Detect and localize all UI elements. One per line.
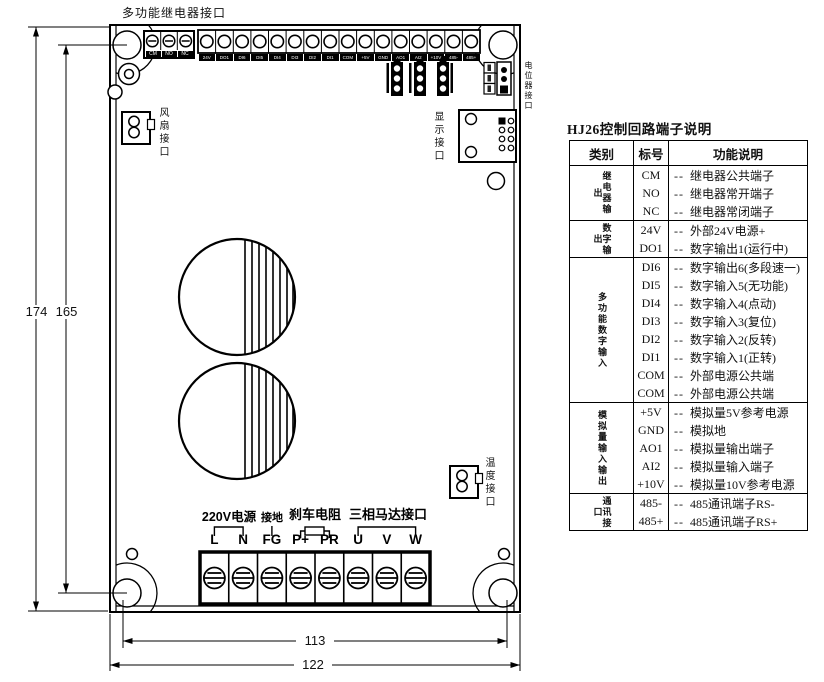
terminal-letter: V [373,531,402,548]
dash: -- [674,315,684,329]
table-row: 模拟量输入输出 +5V --模拟量5V参考电源 [570,403,808,422]
terminal-id: NO [634,184,669,202]
dash: -- [674,242,684,256]
io-terminal-label: AO1 [392,54,409,61]
terminal-letter: N [229,531,258,548]
terminal-id: AI2 [634,457,669,475]
relay-terminal-label: NO [162,51,177,59]
temperature-connector-label: 温度接口 [483,457,493,509]
display-connector-label: 显示接口 [432,111,442,163]
io-terminal-label: GND [375,54,392,61]
io-terminal-label: DI3 [287,54,304,61]
dash: -- [674,169,684,183]
potentiometer-connector-label: 电位器接口 [524,61,532,111]
terminal-id: 485- [634,494,669,513]
dash: -- [674,497,684,511]
dash: -- [674,369,684,383]
terminal-desc: 继电器公共端子 [690,169,774,183]
terminal-id: 485+ [634,512,669,531]
terminal-id: DI3 [634,312,669,330]
dash: -- [674,478,684,492]
terminal-desc: 模拟量10V参考电源 [690,478,795,492]
io-terminal-label: 485- [445,54,462,61]
multifunction-relay-label: 多功能继电器接口 [122,4,226,21]
dash: -- [674,205,684,219]
terminal-desc: 数字输出6(多段速一) [690,261,800,275]
terminal-desc: 485通讯端子RS+ [690,515,777,529]
relay-terminal-label: NC [178,51,193,59]
terminal-desc: 数字输入3(复位) [690,315,776,329]
table-row: 数字输出 24V --外部24V电源+ [570,221,808,240]
io-terminal-labels: 24V DO1 DI6 DI5 DI4 DI3 DI2 DI1 COM +5V … [198,54,480,61]
terminal-desc: 数字输入1(正转) [690,351,776,365]
relay-terminal-label: CM [146,51,161,59]
terminal-desc: 模拟量5V参考电源 [690,406,789,420]
terminal-id: NC [634,202,669,221]
category-cell: 继电器输出 [570,166,634,221]
terminal-letter: W [401,531,430,548]
fan-connector [122,112,155,144]
motor-group-label: 三相马达接口 [347,504,429,523]
io-terminal-label: DI1 [322,54,339,61]
dimension-overall-width: 122 [294,658,332,672]
terminal-desc: 数字输入5(无功能) [690,279,788,293]
table-row: 通讯接口 485- --485通讯端子RS- [570,494,808,513]
terminal-id: COM [634,384,669,403]
temperature-connector [450,466,483,498]
terminal-id: +10V [634,475,669,494]
terminal-desc: 外部24V电源+ [690,224,765,238]
terminal-desc: 485通讯端子RS- [690,497,775,511]
dash: -- [674,297,684,311]
dash: -- [674,406,684,420]
terminal-id: DO1 [634,239,669,258]
terminal-letter: P+ [286,531,315,548]
terminal-id: CM [634,166,669,185]
terminal-letter: L [200,531,229,548]
terminal-desc: 数字输入2(反转) [690,333,776,347]
fan-connector-label: 风扇接口 [157,107,167,159]
brake-resistor-group-label: 刹车电阻 [279,504,351,523]
table-title: HJ26控制回路端子说明 [567,118,712,138]
jumper-blocks [387,56,454,96]
terminal-desc: 数字输出1(运行中) [690,242,788,256]
io-terminal-label: +10V [428,54,445,61]
terminal-desc: 外部电源公共端 [690,369,774,383]
terminal-description-table: 类别 标号 功能说明 继电器输出 CM --继电器公共端子 NO --继电器常开… [569,140,808,531]
terminal-letter: FG [258,531,287,548]
category-label: 通讯接口 [593,494,611,530]
dash: -- [674,515,684,529]
header-id: 标号 [634,141,669,166]
terminal-desc: 继电器常开端子 [690,187,774,201]
dimension-overall-height: 174 [22,305,51,319]
terminal-letter: PR [315,531,344,548]
terminal-letter: U [344,531,373,548]
terminal-desc: 数字输入4(点动) [690,297,776,311]
io-terminal-label: AI2 [410,54,427,61]
dash: -- [674,442,684,456]
wiring-diagram-page: 多功能继电器接口 CM NO NC 24V DO1 DI6 DI5 DI4 DI… [0,0,824,682]
io-terminal-label: DI4 [269,54,286,61]
relay-terminal-labels: CM NO NC [145,51,193,59]
table-header-row: 类别 标号 功能说明 [570,141,808,166]
power-terminal-block [200,552,430,604]
io-terminal-label: 24V [199,54,216,61]
terminal-desc: 继电器常闭端子 [690,205,774,219]
io-terminal-row [198,30,480,53]
dash: -- [674,261,684,275]
dash: -- [674,460,684,474]
terminal-id: DI2 [634,330,669,348]
terminal-id: 24V [634,221,669,240]
category-cell: 通讯接口 [570,494,634,531]
dimension-hole-height: 165 [52,305,81,319]
dash: -- [674,351,684,365]
io-terminal-label: DI5 [251,54,268,61]
terminal-id: DI6 [634,258,669,277]
terminal-desc: 模拟地 [690,424,726,438]
header-description: 功能说明 [669,141,808,166]
dash: -- [674,224,684,238]
dash: -- [674,187,684,201]
dash: -- [674,387,684,401]
terminal-id: +5V [634,403,669,422]
terminal-id: DI5 [634,276,669,294]
category-label: 继电器输出 [593,166,611,220]
dash: -- [674,279,684,293]
category-cell: 多功能数字输入 [570,258,634,403]
io-terminal-label: COM [340,54,357,61]
terminal-id: COM [634,366,669,384]
dimension-hole-width: 113 [296,634,334,648]
category-label: 数字输出 [593,221,611,257]
terminal-desc: 模拟量输出端子 [690,442,774,456]
terminal-id: GND [634,421,669,439]
terminal-id: DI4 [634,294,669,312]
io-terminal-label: +5V [357,54,374,61]
io-terminal-label: 485+ [463,54,480,61]
terminal-desc: 模拟量输入端子 [690,460,774,474]
dash: -- [674,333,684,347]
category-label: 多功能数字输入 [597,292,606,369]
io-terminal-label: DI6 [234,54,251,61]
display-connector [459,110,516,162]
table-row: 继电器输出 CM --继电器公共端子 [570,166,808,185]
table-row: 多功能数字输入 DI6 --数字输出6(多段速一) [570,258,808,277]
io-terminal-label: DI2 [304,54,321,61]
header-category: 类别 [570,141,634,166]
category-cell: 模拟量输入输出 [570,403,634,494]
terminal-id: AO1 [634,439,669,457]
terminal-id: DI1 [634,348,669,366]
potentiometer-connector [484,62,511,95]
power-terminal-letters: L N FG P+ PR U V W [200,531,430,548]
io-terminal-label: DO1 [216,54,233,61]
category-label: 模拟量输入输出 [597,410,606,487]
category-cell: 数字输出 [570,221,634,258]
terminal-desc: 外部电源公共端 [690,387,774,401]
dash: -- [674,424,684,438]
